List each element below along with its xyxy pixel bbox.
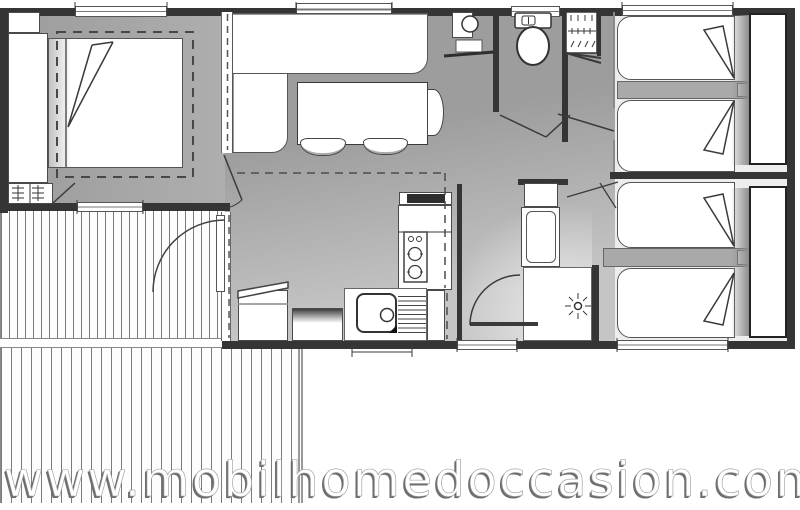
drawer-door-diagonal <box>53 183 75 203</box>
bathroom-door-arc <box>470 275 520 325</box>
floorplan-canvas: www.mobilhomedoccasion.com <box>0 0 800 510</box>
dim-top-ticks <box>75 2 733 14</box>
kitchen-dashed-line <box>445 173 447 339</box>
drawer-hatches <box>12 184 44 204</box>
toilet-bowl <box>517 27 549 65</box>
sink-drain <box>381 309 394 322</box>
basin-counter-edge <box>444 52 494 56</box>
bed3-fold <box>704 194 734 246</box>
bed1-fold <box>704 26 734 78</box>
basin-shelf <box>456 40 482 52</box>
dim-sink-window <box>352 347 412 357</box>
shower-head <box>575 303 582 310</box>
hand-basin <box>462 16 478 32</box>
bedroom3-hall-door <box>567 182 618 208</box>
bed2-fold <box>704 101 734 154</box>
bedroom-door-arc <box>226 200 242 208</box>
watermark-text: www.mobilhomedoccasion.com <box>4 452 800 508</box>
master-blanket-fold <box>68 42 113 127</box>
bed-canopy-dashed-rect <box>57 32 193 177</box>
closet-door-diagonal <box>566 53 601 63</box>
bedroom2-hall-door <box>558 114 614 131</box>
dim-bedroom-window-ticks <box>77 200 143 214</box>
fliptop-lid <box>238 282 288 298</box>
deck-door-arc <box>153 220 225 292</box>
wc-door-diagonals <box>500 115 570 137</box>
sink-corner-dark <box>389 325 397 333</box>
dim-bottom-ticks <box>457 338 728 352</box>
bedroom-door-leaf <box>224 155 242 200</box>
detail-overlay <box>0 0 800 510</box>
bed4-fold <box>704 273 734 325</box>
hob-panel <box>404 232 427 282</box>
